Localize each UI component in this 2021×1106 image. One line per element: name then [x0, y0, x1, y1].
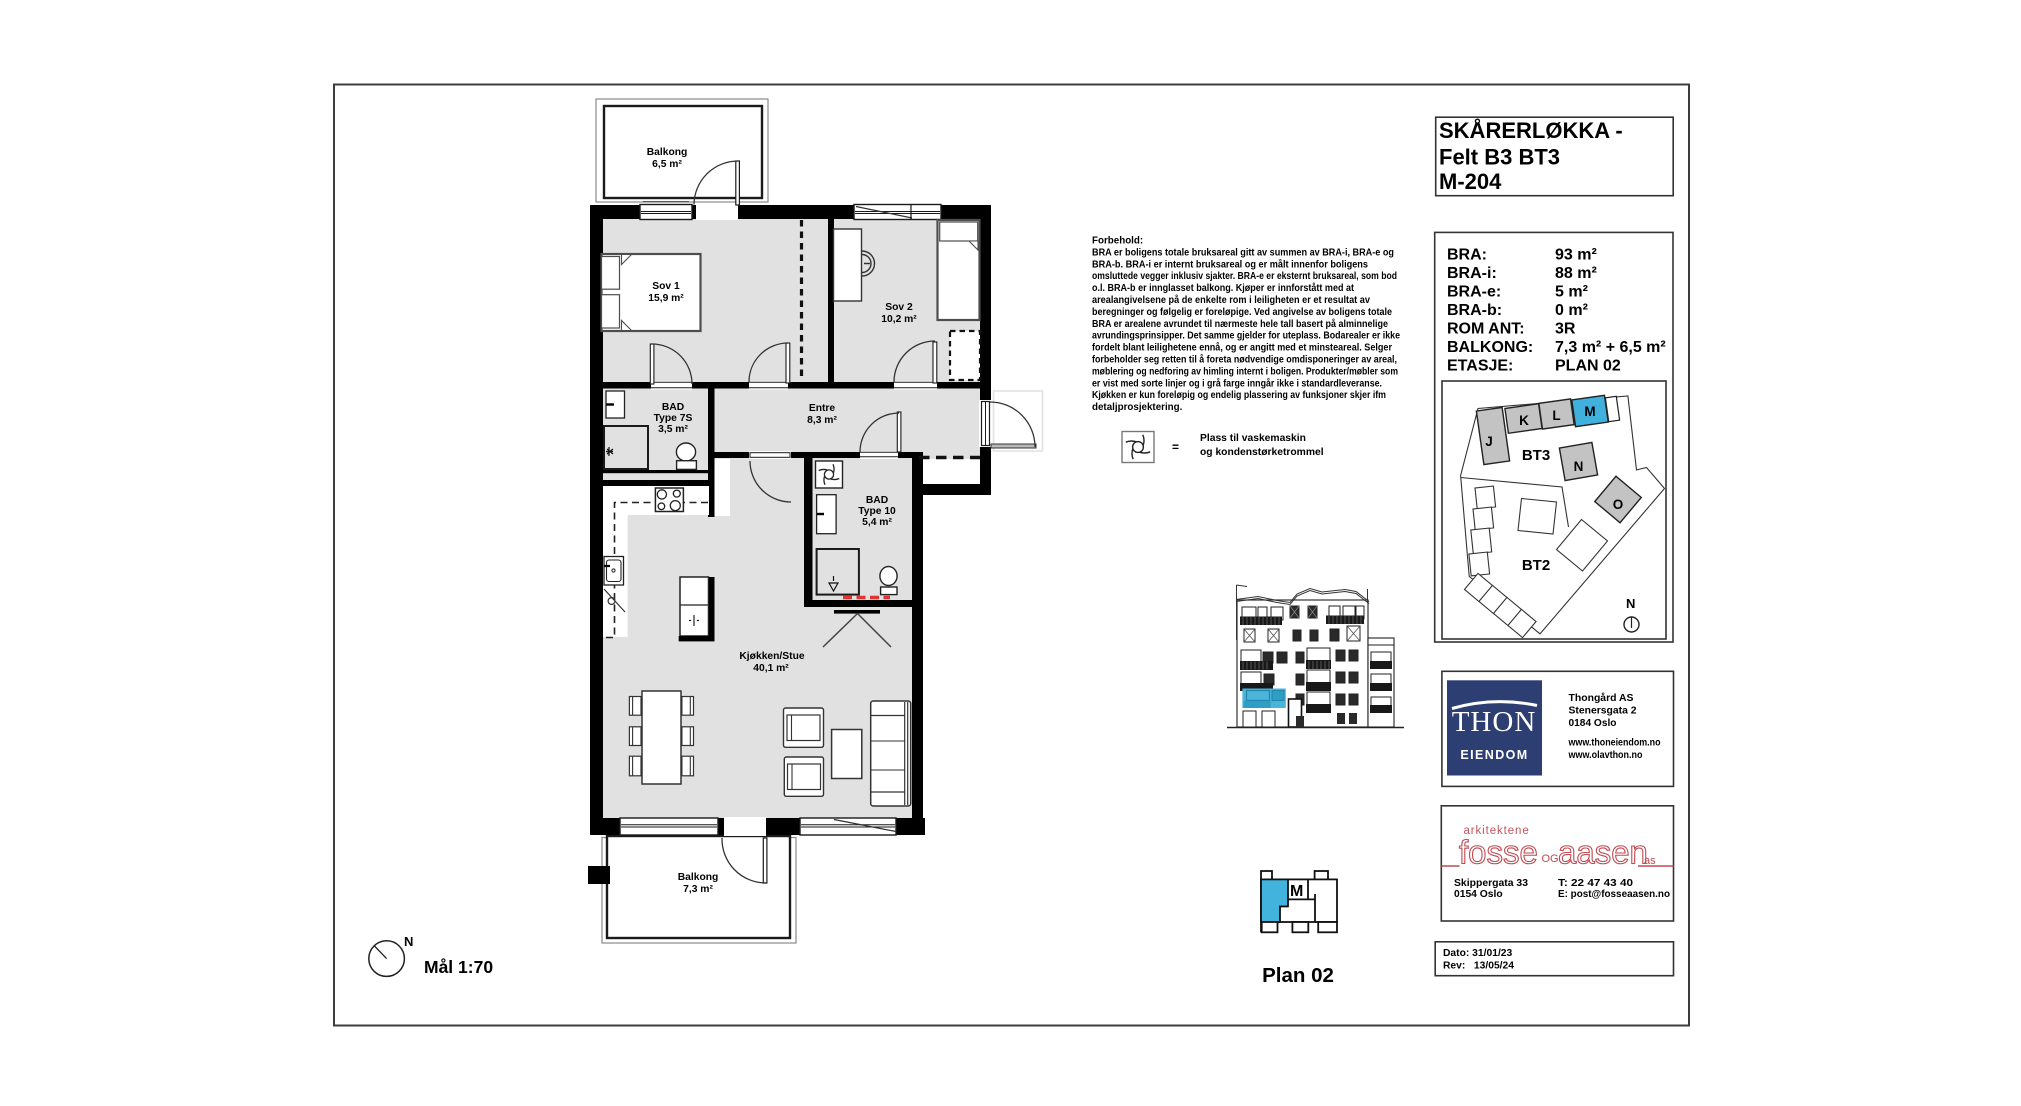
svg-text:Type 10: Type 10	[858, 506, 896, 517]
svg-text:Mål 1:70: Mål 1:70	[424, 957, 493, 977]
svg-text:M: M	[1584, 404, 1595, 419]
svg-text:7,3 m²: 7,3 m²	[683, 884, 713, 895]
svg-text:omsluttede vegger inklusiv sja: omsluttede vegger inklusiv sjakter. BRA-…	[1092, 271, 1397, 282]
svg-text:THON: THON	[1452, 706, 1537, 738]
svg-text:Type 7S: Type 7S	[654, 413, 693, 424]
svg-text:5,4 m²: 5,4 m²	[862, 517, 892, 528]
svg-text:BRA:: BRA:	[1447, 247, 1487, 264]
svg-text:0184 Oslo: 0184 Oslo	[1569, 718, 1617, 729]
svg-text:Thongård AS: Thongård AS	[1569, 692, 1634, 704]
svg-text:Balkong: Balkong	[647, 147, 688, 158]
svg-text:K: K	[1519, 413, 1529, 428]
svg-text:BRA er arealene avrundet til n: BRA er arealene avrundet til nærmeste he…	[1092, 319, 1388, 330]
svg-text:forbeholder seg retten til å f: forbeholder seg retten til å foreta nødv…	[1092, 355, 1397, 366]
svg-text:BRA-i:: BRA-i:	[1447, 265, 1497, 282]
svg-text:Plan 02: Plan 02	[1262, 964, 1334, 987]
svg-text:aasen: aasen	[1558, 834, 1648, 871]
svg-text:Dato: 31/01/23: Dato: 31/01/23	[1443, 948, 1513, 959]
svg-text:J: J	[1485, 434, 1493, 449]
svg-text:PLAN 02: PLAN 02	[1555, 358, 1621, 375]
svg-text:Skippergata 33: Skippergata 33	[1454, 878, 1528, 889]
svg-text:88 m²: 88 m²	[1555, 265, 1597, 282]
svg-text:ETASJE:: ETASJE:	[1447, 358, 1513, 375]
svg-text:N: N	[1626, 596, 1635, 611]
svg-text:Balkong: Balkong	[678, 872, 719, 883]
svg-text:N: N	[404, 934, 413, 949]
svg-text:7,3 m² + 6,5 m²: 7,3 m² + 6,5 m²	[1555, 339, 1666, 356]
svg-text:arealangivelsene på de enkelte: arealangivelsene på de enkelte rom i lei…	[1092, 295, 1371, 306]
svg-text:SKÅRERLØKKA -: SKÅRERLØKKA -	[1439, 117, 1623, 143]
svg-text:BRA-b:: BRA-b:	[1447, 302, 1502, 319]
svg-text:3R: 3R	[1555, 321, 1576, 338]
svg-text:N: N	[1574, 459, 1584, 474]
svg-text:Felt B3 BT3: Felt B3 BT3	[1439, 145, 1560, 170]
svg-text:10,2 m²: 10,2 m²	[881, 314, 917, 325]
svg-text:5 m²: 5 m²	[1555, 284, 1588, 301]
svg-text:BT2: BT2	[1522, 557, 1550, 574]
svg-text:o.l. BRA-b er innglasset balko: o.l. BRA-b er innglasset balkong. Kjøper…	[1092, 283, 1355, 294]
svg-text:fosse: fosse	[1459, 834, 1538, 871]
svg-text:E: post@fosseaasen.no: E: post@fosseaasen.no	[1558, 889, 1670, 900]
svg-text:M-204: M-204	[1439, 169, 1502, 194]
svg-text:Plass til vaskemaskin: Plass til vaskemaskin	[1200, 433, 1306, 444]
svg-text:93 m²: 93 m²	[1555, 247, 1597, 264]
svg-text:avrundingsprinsipper. Det samm: avrundingsprinsipper. Det samme gjelder …	[1092, 331, 1400, 342]
svg-text:T: 22 47 43 40: T: 22 47 43 40	[1558, 878, 1633, 889]
svg-text:Kjøkken/Stue: Kjøkken/Stue	[739, 651, 805, 662]
svg-text:BT3: BT3	[1522, 447, 1550, 464]
svg-text:6,5 m²: 6,5 m²	[652, 159, 682, 170]
svg-text:BAD: BAD	[662, 402, 684, 413]
svg-text:M: M	[1290, 883, 1303, 900]
svg-text:www.thoneiendom.no: www.thoneiendom.no	[1568, 738, 1661, 749]
svg-text:15,9 m²: 15,9 m²	[648, 293, 684, 304]
svg-text:fordelt blant leilighetene enn: fordelt blant leilighetene ennå, og er a…	[1092, 343, 1392, 354]
svg-text:Rev: 13/05/24: Rev: 13/05/24	[1443, 961, 1514, 972]
svg-text:BRA er boligens totale bruksar: BRA er boligens totale bruksareal gitt a…	[1092, 247, 1394, 258]
svg-text:www.olavthon.no: www.olavthon.no	[1568, 750, 1643, 761]
svg-text:møblering og nedforing av himl: møblering og nedforing av himling intern…	[1092, 366, 1398, 377]
svg-text:Sov 1: Sov 1	[652, 281, 680, 292]
svg-text:er vist med sorte linjer og i: er vist med sorte linjer og i grå farge …	[1092, 378, 1382, 389]
svg-text:=: =	[1172, 440, 1179, 454]
svg-text:Kjøkken er kun foreløpig og en: Kjøkken er kun foreløpig og endelig plas…	[1092, 390, 1386, 401]
svg-text:og kondenstørketrommel: og kondenstørketrommel	[1200, 447, 1324, 458]
svg-text:40,1 m²: 40,1 m²	[753, 663, 789, 674]
svg-text:Stenersgata 2: Stenersgata 2	[1569, 706, 1637, 717]
svg-text:EIENDOM: EIENDOM	[1460, 748, 1528, 762]
svg-text:BRA-e:: BRA-e:	[1447, 284, 1501, 301]
svg-text:OG: OG	[1542, 853, 1559, 865]
svg-text:beregninger og følgelig er for: beregninger og følgelig er foreløpige. V…	[1092, 307, 1392, 318]
svg-text:0154 Oslo: 0154 Oslo	[1454, 889, 1503, 900]
svg-text:Entre: Entre	[809, 403, 836, 414]
svg-text:BRA-b. BRA-i er internt bruksa: BRA-b. BRA-i er internt bruksareal og er…	[1092, 259, 1369, 270]
svg-text:L: L	[1552, 408, 1560, 423]
svg-text:BALKONG:: BALKONG:	[1447, 339, 1533, 356]
svg-text:ROM ANT:: ROM ANT:	[1447, 321, 1525, 338]
svg-text:8,3 m²: 8,3 m²	[807, 415, 837, 426]
svg-text:Forbehold:: Forbehold:	[1092, 236, 1143, 247]
svg-text:O: O	[1613, 497, 1624, 512]
svg-text:3,5 m²: 3,5 m²	[658, 424, 688, 435]
svg-text:Sov 2: Sov 2	[885, 302, 913, 313]
svg-text:detaljprosjektering.: detaljprosjektering.	[1092, 402, 1183, 413]
svg-text:0 m²: 0 m²	[1555, 302, 1588, 319]
svg-text:BAD: BAD	[866, 495, 888, 506]
svg-text:as: as	[1644, 855, 1656, 867]
